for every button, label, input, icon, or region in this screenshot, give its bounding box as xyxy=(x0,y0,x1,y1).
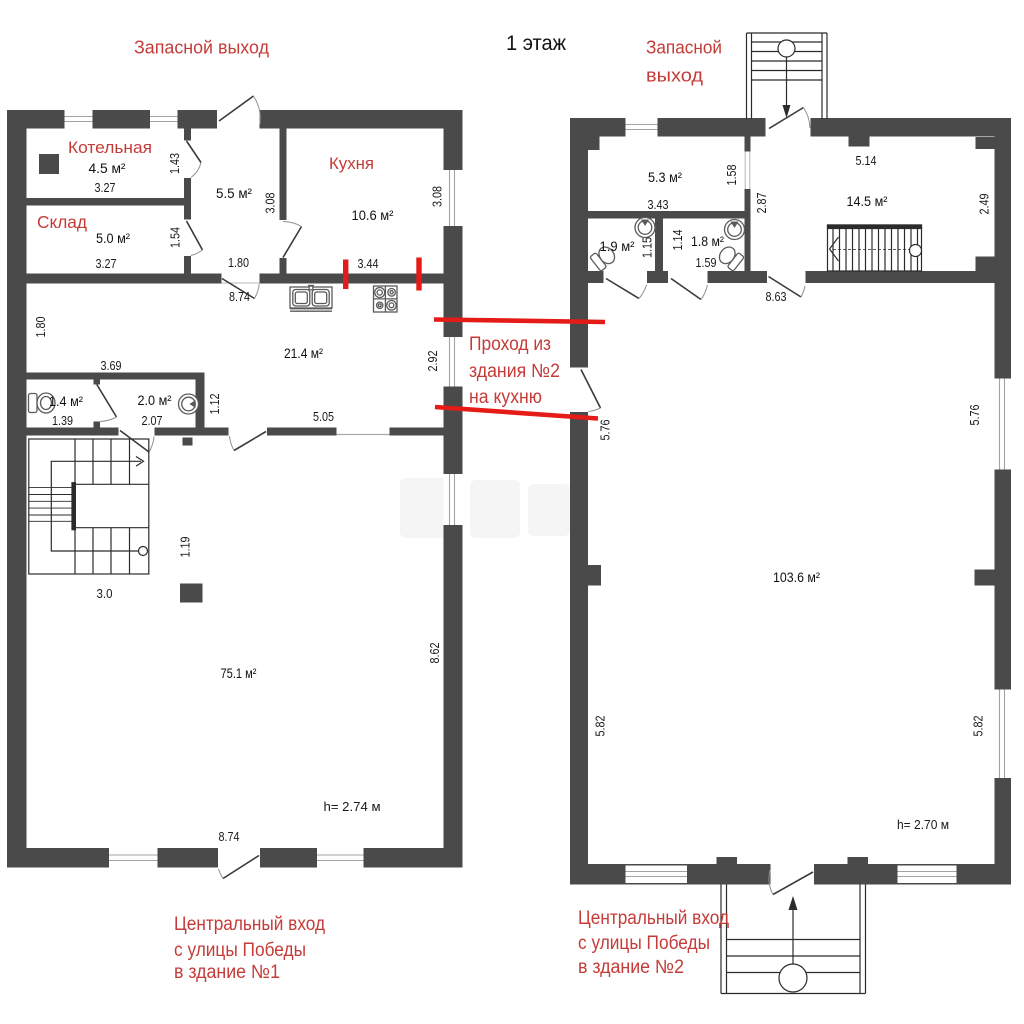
svg-text:4.5 м²: 4.5 м² xyxy=(89,160,126,176)
svg-text:h= 2.74 м: h= 2.74 м xyxy=(324,800,381,814)
svg-text:в здание №2: в здание №2 xyxy=(578,957,684,978)
svg-text:3.0: 3.0 xyxy=(97,587,113,601)
svg-text:5.76: 5.76 xyxy=(968,404,982,425)
svg-text:5.82: 5.82 xyxy=(972,715,986,736)
svg-text:на кухню: на кухню xyxy=(469,387,542,408)
svg-text:8.74: 8.74 xyxy=(229,290,250,304)
svg-text:14.5 м²: 14.5 м² xyxy=(847,193,888,209)
svg-text:3.43: 3.43 xyxy=(648,198,669,212)
svg-text:2.07: 2.07 xyxy=(142,414,163,428)
svg-text:8.62: 8.62 xyxy=(428,642,442,663)
svg-text:2.87: 2.87 xyxy=(755,192,769,213)
svg-text:3.69: 3.69 xyxy=(101,359,122,373)
svg-text:5.76: 5.76 xyxy=(599,419,613,440)
svg-text:Центральный вход: Центральный вход xyxy=(174,914,325,935)
svg-text:Запасной выход: Запасной выход xyxy=(134,38,269,58)
svg-text:1.80: 1.80 xyxy=(34,316,48,337)
svg-text:21.4 м²: 21.4 м² xyxy=(284,345,323,361)
svg-text:3.44: 3.44 xyxy=(358,257,379,271)
svg-text:1.54: 1.54 xyxy=(169,227,183,248)
svg-text:h= 2.70 м: h= 2.70 м xyxy=(897,818,949,832)
svg-text:1.9 м²: 1.9 м² xyxy=(600,238,635,254)
svg-text:1.12: 1.12 xyxy=(208,393,222,414)
svg-text:1 этаж: 1 этаж xyxy=(506,32,566,55)
svg-text:3.27: 3.27 xyxy=(96,257,117,271)
svg-text:выход: выход xyxy=(646,66,704,86)
svg-text:1.39: 1.39 xyxy=(52,414,73,428)
svg-text:с улицы Победы: с улицы Победы xyxy=(578,933,710,954)
svg-text:2.92: 2.92 xyxy=(426,350,440,371)
svg-text:3.08: 3.08 xyxy=(264,192,278,213)
svg-text:1.8 м²: 1.8 м² xyxy=(691,233,724,249)
svg-text:Центральный вход: Центральный вход xyxy=(578,908,729,929)
svg-text:3.27: 3.27 xyxy=(95,181,116,195)
svg-text:2.0 м²: 2.0 м² xyxy=(138,392,172,408)
svg-text:в здание №1: в здание №1 xyxy=(174,962,280,983)
svg-text:Проход из: Проход из xyxy=(469,334,551,355)
svg-text:1.58: 1.58 xyxy=(725,164,739,185)
svg-text:2.49: 2.49 xyxy=(978,193,992,214)
svg-text:5.14: 5.14 xyxy=(856,154,877,168)
svg-text:1.80: 1.80 xyxy=(228,256,249,270)
svg-text:1.4 м²: 1.4 м² xyxy=(49,393,83,409)
svg-text:здания №2: здания №2 xyxy=(469,361,560,382)
svg-text:8.74: 8.74 xyxy=(219,830,240,844)
svg-text:Склад: Склад xyxy=(37,212,87,232)
svg-text:1.14: 1.14 xyxy=(671,229,685,250)
svg-text:1.59: 1.59 xyxy=(696,256,717,270)
svg-text:Кухня: Кухня xyxy=(329,155,374,173)
svg-text:Котельная: Котельная xyxy=(68,138,152,157)
svg-text:1.43: 1.43 xyxy=(168,153,182,174)
svg-text:5.05: 5.05 xyxy=(313,410,334,424)
svg-text:75.1 м²: 75.1 м² xyxy=(221,665,257,681)
svg-text:8.63: 8.63 xyxy=(766,290,787,304)
svg-text:3.08: 3.08 xyxy=(431,186,445,207)
svg-text:10.6 м²: 10.6 м² xyxy=(352,207,394,223)
svg-text:5.3 м²: 5.3 м² xyxy=(648,169,682,185)
svg-text:5.0 м²: 5.0 м² xyxy=(96,230,130,246)
svg-text:103.6 м²: 103.6 м² xyxy=(773,569,820,585)
svg-text:5.82: 5.82 xyxy=(594,715,608,736)
svg-text:1.15: 1.15 xyxy=(641,237,655,258)
svg-text:Запасной: Запасной xyxy=(646,38,722,58)
svg-text:с улицы Победы: с улицы Победы xyxy=(174,940,306,961)
svg-text:5.5 м²: 5.5 м² xyxy=(216,185,252,201)
svg-text:1.19: 1.19 xyxy=(179,536,193,557)
